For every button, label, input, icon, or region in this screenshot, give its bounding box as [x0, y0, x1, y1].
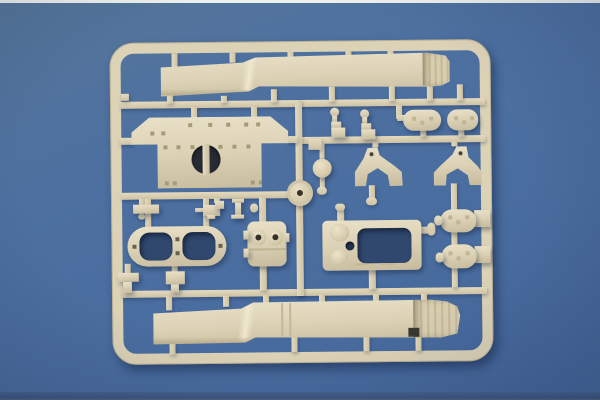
ring-holes [127, 227, 129, 229]
plate-opening-bar [202, 144, 209, 175]
part-mg-mount [195, 198, 250, 223]
clamp-bar [118, 273, 139, 282]
part-ball-mount [313, 159, 332, 178]
part-idler-disc [287, 180, 313, 206]
hatch-opening-right [182, 232, 215, 260]
part-small-bar [133, 204, 159, 213]
part-engine-deck-plate [322, 220, 422, 271]
sprue [0, 0, 600, 400]
sprue-gate [317, 187, 327, 195]
deck-boss-2 [331, 250, 348, 265]
part-stowage-pod-1 [440, 209, 476, 232]
runner-stub [451, 141, 457, 146]
runner-stub [271, 89, 277, 102]
deck-cutout [357, 228, 411, 264]
sprue-gate [250, 203, 258, 212]
runner-stub [421, 294, 427, 301]
fender-ribbed-end [422, 52, 449, 85]
runner-stub [166, 296, 172, 310]
hatch-opening-left [139, 232, 172, 260]
sprue-gate [138, 214, 145, 220]
pod-dimples [441, 245, 443, 247]
runner-stub [287, 136, 297, 143]
box-boss-right [267, 229, 283, 245]
part-periscope-box [247, 221, 286, 266]
pod-knob [434, 216, 442, 226]
bracket-hole [370, 152, 374, 156]
sprue-gate [335, 204, 345, 211]
spool-bottom-flange [231, 215, 244, 219]
mg-block [215, 201, 224, 209]
bracket-hole [458, 151, 462, 155]
fender-groove [281, 303, 283, 336]
pod-block [474, 246, 490, 263]
sprue-photo [0, 0, 600, 400]
runner-stub [223, 296, 229, 307]
part-periscope-knob-1 [325, 108, 343, 142]
runner [451, 183, 458, 287]
part-stowage-pod-2 [441, 244, 476, 268]
pod-dimples [440, 210, 442, 212]
pod-block [474, 210, 490, 227]
runner-stub [260, 265, 267, 290]
pod-knob [436, 252, 444, 262]
tank-dimples [403, 110, 405, 112]
box-tab [244, 249, 249, 258]
fender-fold-seam [240, 57, 257, 91]
knob-base [331, 128, 345, 138]
deck-boss-1 [329, 223, 349, 241]
runner-stub [291, 336, 297, 352]
clamp-stem [123, 282, 132, 293]
box-seam [248, 248, 287, 250]
runner-stub [369, 268, 376, 289]
clamp-block [166, 271, 185, 284]
runner-stub [329, 87, 335, 102]
part-fuel-tank-1 [403, 110, 441, 131]
runner-stub [457, 84, 463, 100]
part-clamp-2 [166, 271, 185, 292]
runner-stub [221, 96, 227, 103]
runner-stub [167, 95, 173, 103]
disc-center-hole [297, 190, 303, 196]
runner-stub [119, 138, 133, 145]
part-periscope-knob-2 [355, 109, 373, 143]
runner-stub [427, 87, 433, 101]
box-boss-left [250, 229, 266, 245]
sprue-gate [308, 139, 321, 150]
runner-stub [363, 335, 369, 351]
sprue-gate [427, 223, 435, 236]
runner-stub [263, 295, 269, 303]
boss-hole [255, 234, 261, 240]
runner-stub [169, 343, 175, 354]
box-tab [285, 233, 289, 242]
part-fuel-tank-2 [447, 109, 478, 130]
deck-mark [381, 263, 395, 265]
part-clamp-1 [118, 273, 139, 293]
fender-ribbed-end [413, 299, 459, 337]
runner-stub [373, 294, 379, 301]
boss-hole [272, 234, 278, 240]
tank-dimples [447, 109, 449, 111]
deck-mark [355, 263, 367, 265]
runner-stub [259, 197, 266, 222]
part-twin-hatch-ring [127, 226, 226, 267]
runner-stub [171, 53, 177, 67]
sprue-gate [366, 197, 377, 205]
knob-base [361, 129, 375, 139]
deck-through-hole [345, 241, 354, 250]
runner-stub [319, 295, 325, 302]
runner-stub [121, 94, 129, 101]
box-tab [243, 231, 248, 240]
runner-stub [415, 336, 421, 351]
clamp-stem [171, 284, 179, 292]
mg-foot [207, 215, 215, 219]
runner-stub [389, 85, 395, 101]
runner-stub [229, 53, 235, 63]
fender-groove [289, 303, 291, 336]
